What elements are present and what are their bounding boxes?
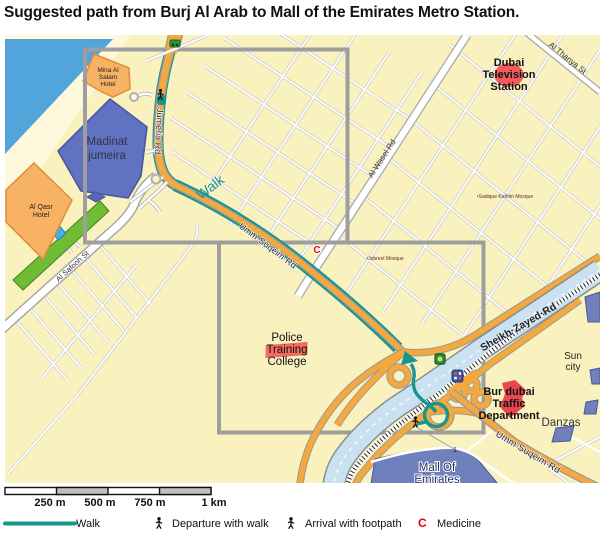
- svg-text:•Jebreel Mosque: •Jebreel Mosque: [366, 256, 404, 262]
- svg-text:Training: Training: [266, 344, 307, 356]
- svg-text:College: College: [268, 356, 307, 368]
- svg-text:1 km: 1 km: [201, 497, 226, 509]
- svg-text:C: C: [313, 245, 320, 256]
- svg-text:Madinat: Madinat: [87, 136, 129, 148]
- svg-text:Mall Of: Mall Of: [419, 462, 456, 474]
- svg-text:Salam: Salam: [99, 74, 117, 81]
- svg-text:Emirates: Emirates: [414, 474, 460, 486]
- svg-text:Hotel: Hotel: [100, 81, 116, 88]
- svg-text:Police: Police: [271, 332, 302, 344]
- svg-text:Medicine: Medicine: [437, 518, 481, 530]
- svg-text:Department: Department: [478, 410, 539, 422]
- svg-text:Al Qasr: Al Qasr: [29, 204, 53, 211]
- svg-text:city: city: [566, 362, 581, 373]
- svg-text:Traffic: Traffic: [492, 398, 525, 410]
- svg-text:250 m: 250 m: [34, 497, 65, 509]
- svg-text:Sun: Sun: [564, 351, 582, 362]
- svg-text:C: C: [418, 516, 427, 530]
- svg-text:jumeira: jumeira: [87, 150, 126, 162]
- svg-text:Television: Television: [483, 69, 536, 81]
- svg-text:1: 1: [453, 447, 457, 454]
- svg-text:Bur dubai: Bur dubai: [483, 386, 534, 398]
- svg-text:Arrival with footpath: Arrival with footpath: [305, 518, 402, 530]
- svg-text:Departure with walk: Departure with walk: [172, 518, 269, 530]
- svg-text:Walk: Walk: [76, 518, 101, 530]
- svg-text:Mina Al: Mina Al: [97, 67, 119, 74]
- svg-text:•Sadique Kathim Mosque: •Sadique Kathim Mosque: [477, 194, 533, 200]
- svg-text:Danzas: Danzas: [542, 417, 581, 429]
- svg-text:Hotel: Hotel: [33, 212, 50, 219]
- svg-text:Dubai: Dubai: [494, 57, 525, 69]
- svg-text:Station: Station: [490, 81, 528, 93]
- svg-text:500 m: 500 m: [84, 497, 115, 509]
- svg-text:750 m: 750 m: [134, 497, 165, 509]
